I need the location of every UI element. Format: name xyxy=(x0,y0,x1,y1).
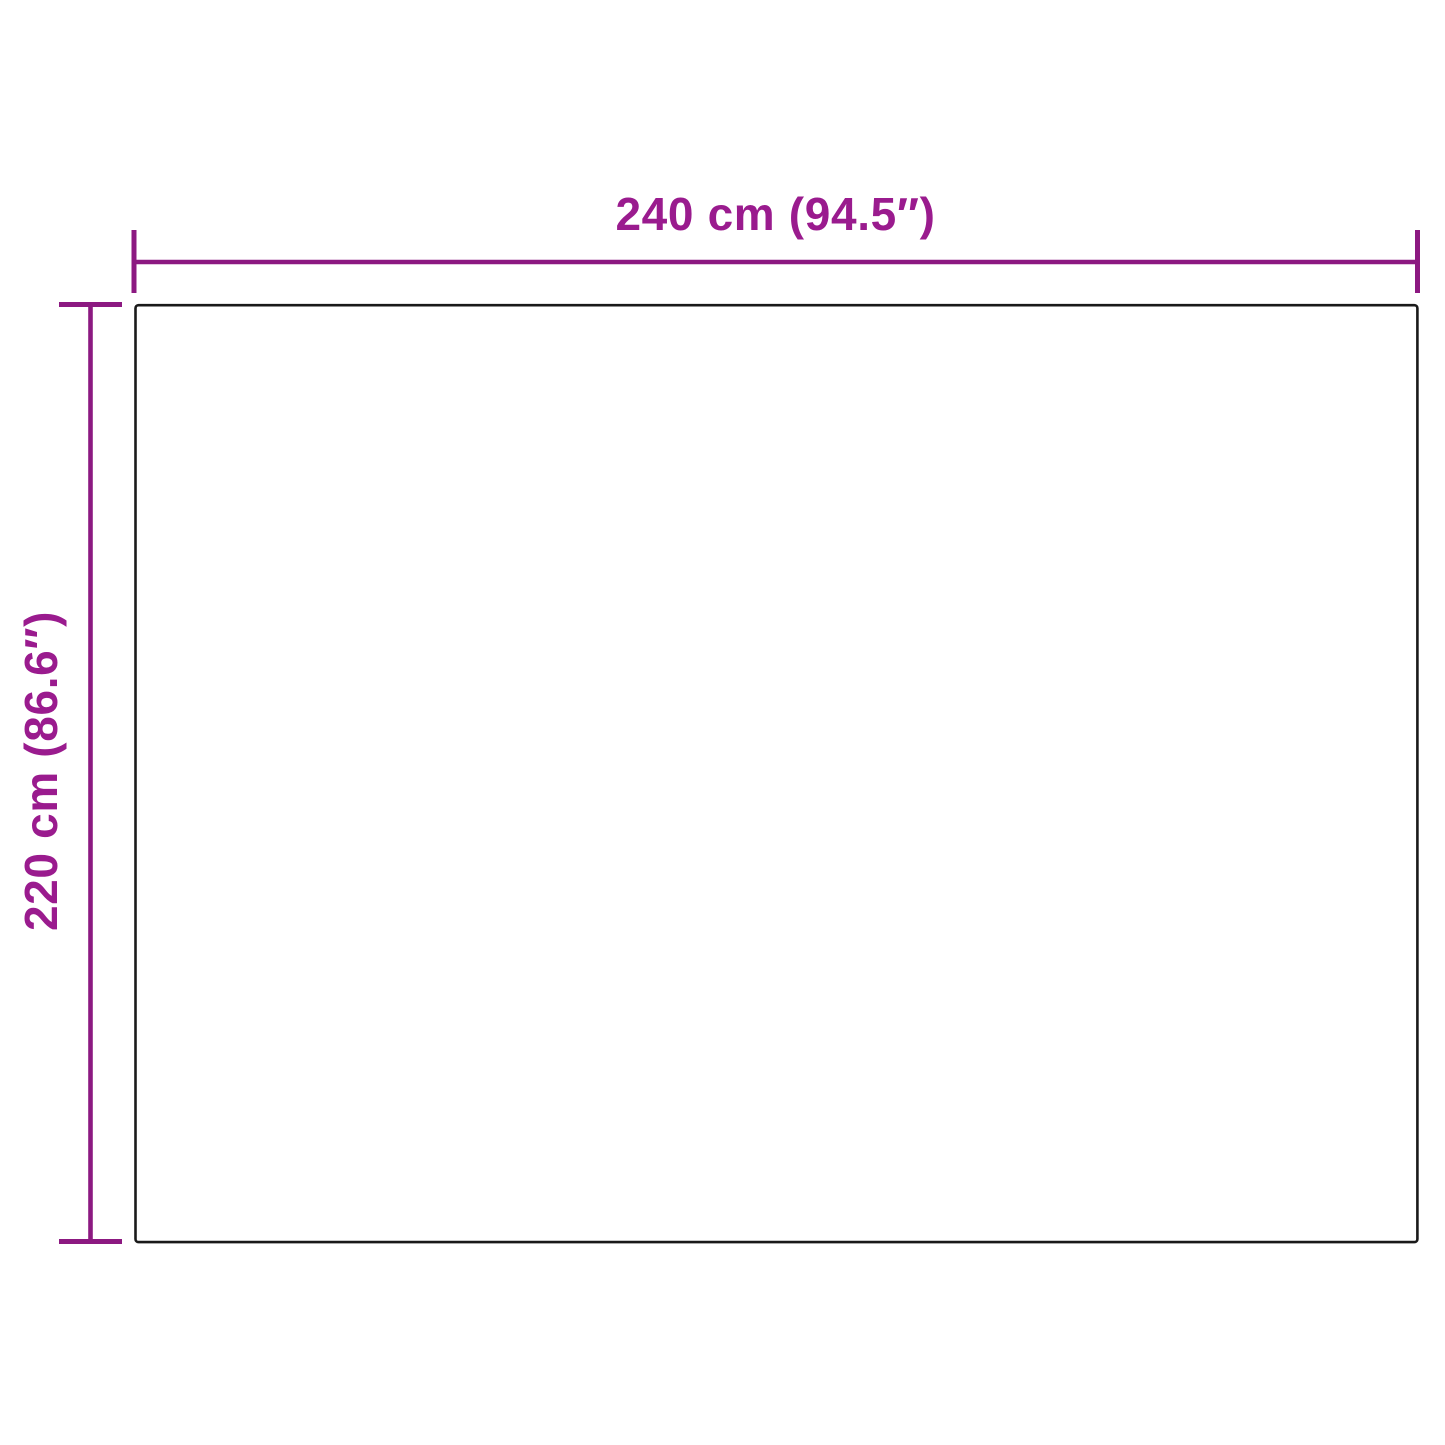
svg-text:220 cm (86.6″): 220 cm (86.6″) xyxy=(15,611,67,931)
svg-text:240 cm (94.5″): 240 cm (94.5″) xyxy=(615,188,935,240)
